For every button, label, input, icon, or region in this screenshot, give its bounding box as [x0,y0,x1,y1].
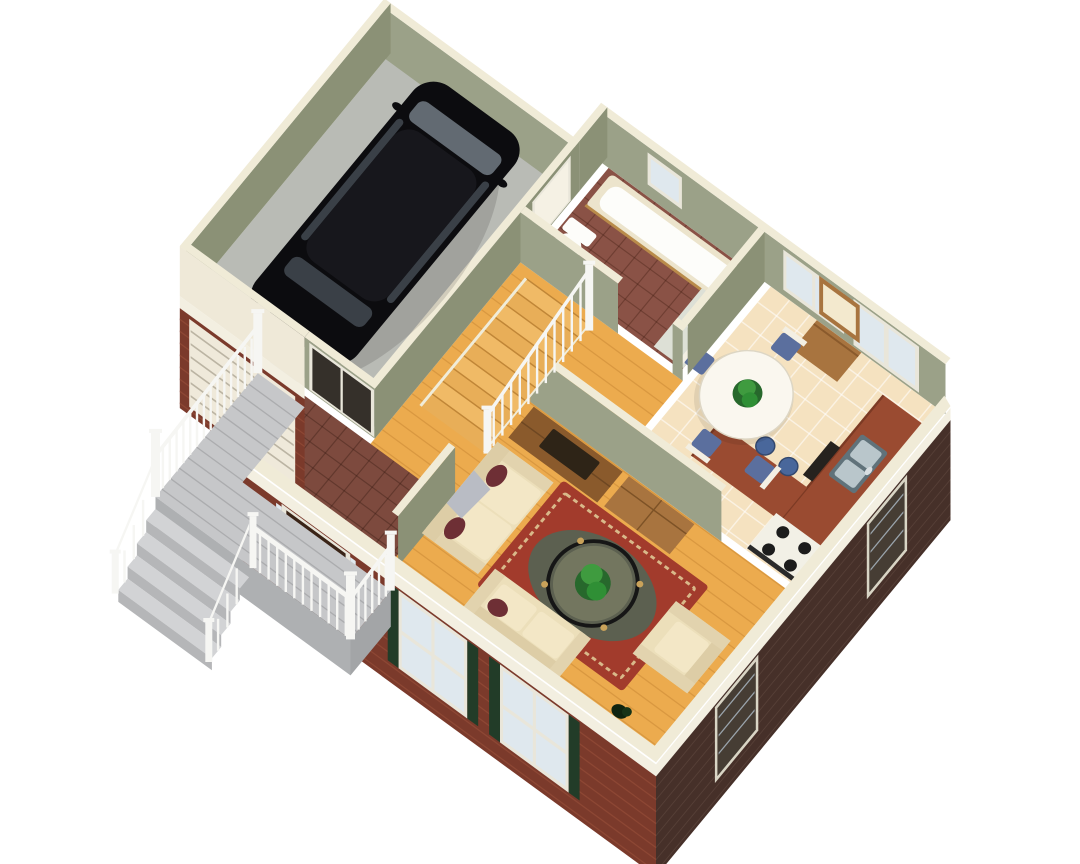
window1-shutter-right [467,641,478,727]
step-baluster-w [133,525,135,559]
porch-post-mid [250,516,257,568]
porch-post-sw-cap [149,429,162,433]
porch-baluster-s [328,583,330,623]
porch-baluster-s [285,552,287,592]
stair-baluster [510,382,512,426]
porch-baluster-w [169,438,171,480]
stair-baluster [545,332,547,383]
stair-baluster [493,406,495,446]
step-baluster-e [217,619,219,651]
porch-post-e [387,535,395,591]
step-newel-east [205,622,212,662]
porch-baluster-s [336,590,338,630]
porch-baluster-e [357,588,359,630]
porch-post-mid-cap [248,512,259,516]
porch-baluster-w [175,429,177,471]
step-newel-west-cap [110,550,121,554]
stair-baluster [501,394,503,436]
floor-plan-page [0,0,1080,864]
porch-post-nw [253,313,262,373]
step-baluster-e [226,594,228,628]
stair-newel-bottom [484,410,492,454]
window2-shutter-left [489,656,500,742]
porch-baluster-w [196,405,198,447]
stair-baluster [553,320,555,373]
porch-baluster-w [210,388,212,430]
step-baluster-e [236,568,238,604]
porch-baluster-w [162,446,164,488]
stair-newel-bottom-cap [482,406,494,410]
porch-baluster-e [385,555,387,597]
bath-south-wall-east-face [673,324,683,381]
porch-baluster-w [237,355,239,397]
porch-baluster-e [371,571,373,613]
porch-baluster-w [182,421,184,463]
step-newel-east-cap [203,618,214,622]
porch-baluster-w [216,380,218,422]
porch-baluster-w [203,396,205,438]
stair-baluster [571,295,573,351]
porch-baluster-w [189,413,191,455]
floor-plan-3d-rendering [0,0,1080,864]
porch-post-se-cap [344,571,357,575]
porch-baluster-s [310,571,312,611]
porch-post-nw-cap [251,309,264,313]
porch-baluster-w [244,347,246,389]
porch-baluster-s [302,565,304,605]
porch-post-se [346,575,355,639]
stair-baluster [527,357,529,404]
porch-post-e-cap [385,531,397,535]
stair-baluster [519,369,521,414]
porch-baluster-w [230,363,232,405]
porch-baluster-s [293,558,295,598]
porch-baluster-e [378,563,380,605]
window2-shutter-right [569,715,580,801]
porch-baluster-s [259,533,261,573]
stair-newel-top-cap [583,261,595,265]
stair-baluster [536,345,538,394]
step-baluster-w [123,550,125,582]
porch-post-sw [151,433,160,497]
porch-baluster-e [364,579,366,621]
porch-baluster-s [276,546,278,586]
porch-baluster-s [319,577,321,617]
stair-baluster [579,283,581,341]
stair-baluster [562,308,564,362]
porch-baluster-w [250,339,252,381]
step-baluster-w [142,500,144,536]
porch-baluster-w [223,372,225,414]
step-newel-west [112,554,119,594]
porch-baluster-s [267,540,269,580]
